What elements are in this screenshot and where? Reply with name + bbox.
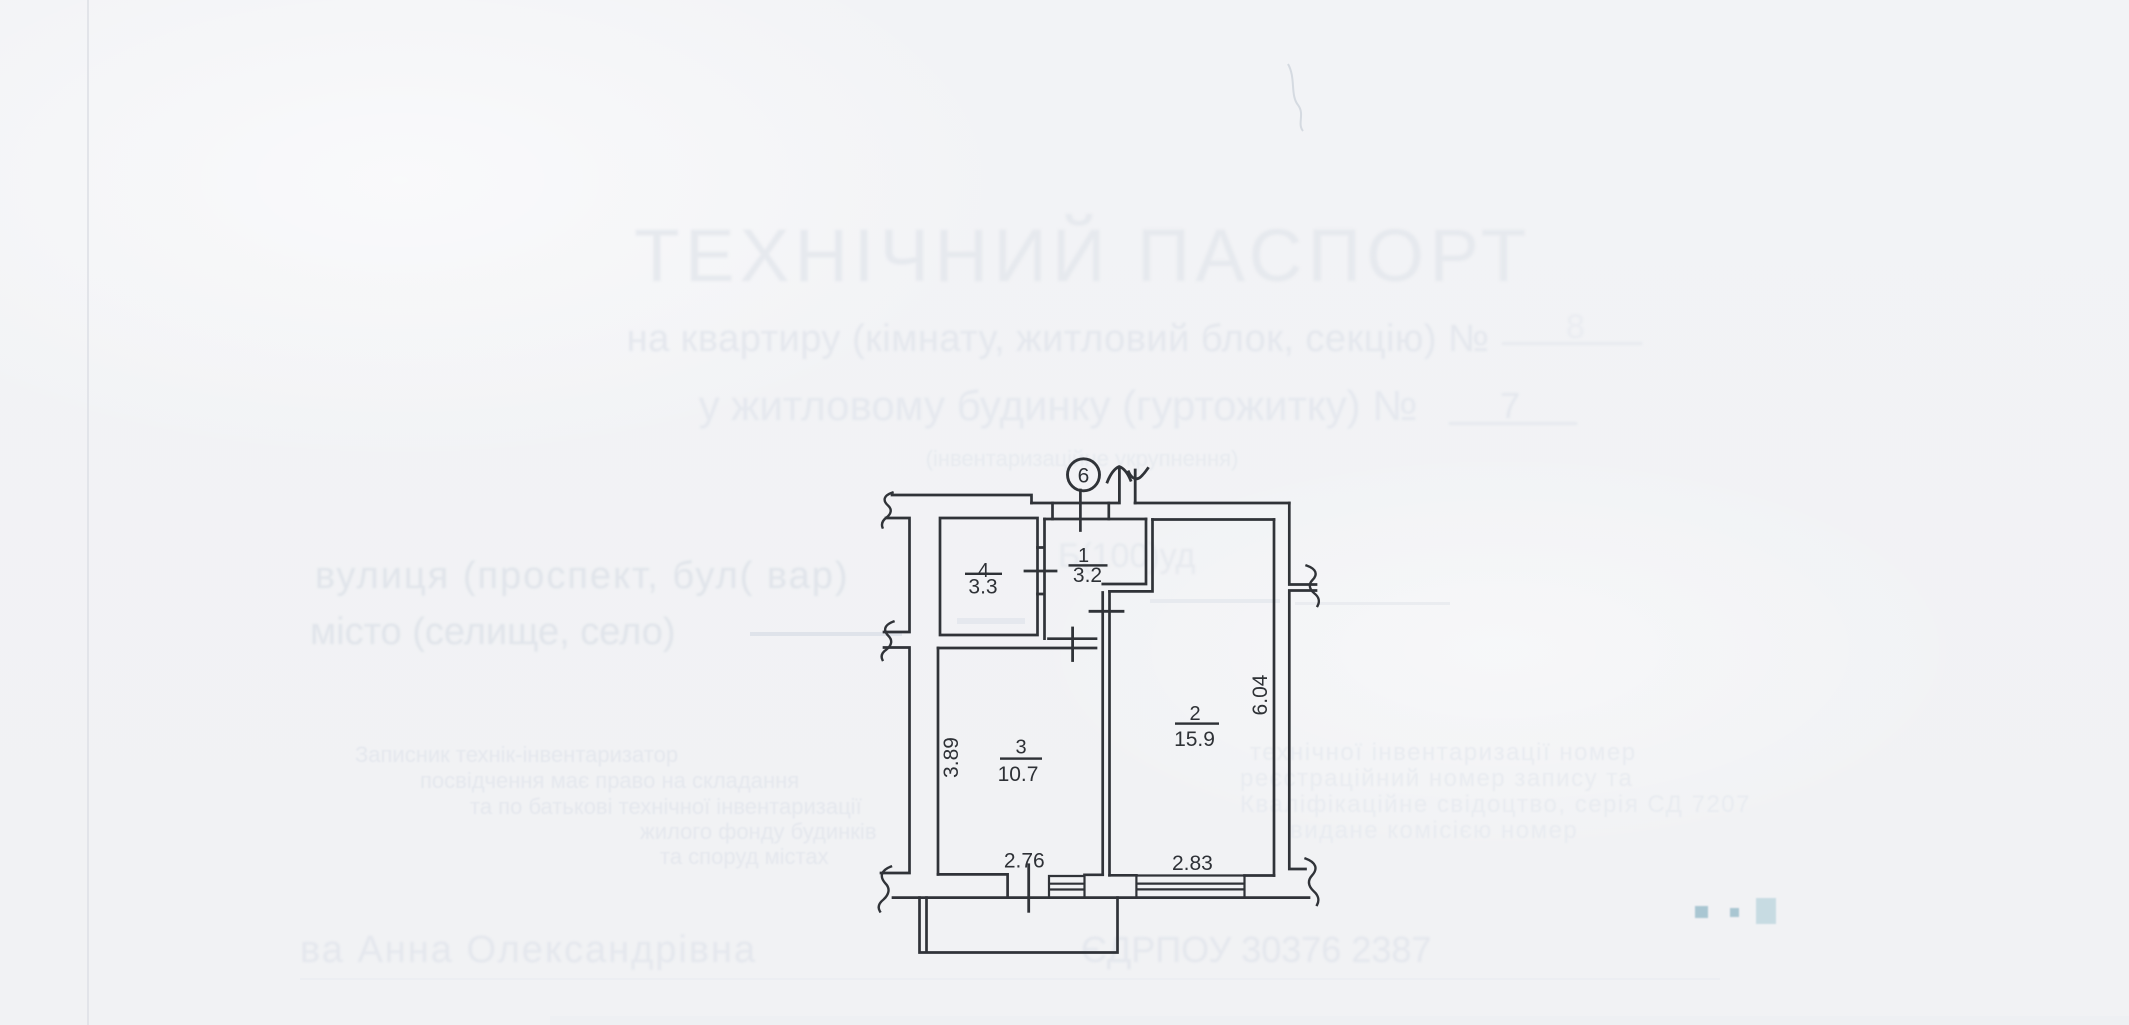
- svg-text:жилого фонду будинків: жилого фонду будинків: [640, 819, 877, 844]
- svg-text:технічної інвентаризації номер: технічної інвентаризації номер: [1250, 739, 1637, 766]
- svg-text:реєстраційний номер запису та: реєстраційний номер запису та: [1240, 765, 1633, 792]
- svg-text:2: 2: [1189, 703, 1200, 725]
- svg-text:6.04: 6.04: [1249, 674, 1272, 715]
- svg-text:видане комісією номер: видане комісією номер: [1290, 817, 1578, 844]
- svg-text:3.2: 3.2: [1073, 564, 1102, 587]
- svg-text:2.76: 2.76: [1004, 850, 1045, 873]
- svg-text:ЄДРПОУ 30376 2387: ЄДРПОУ 30376 2387: [1081, 929, 1431, 970]
- svg-text:7: 7: [1500, 385, 1520, 426]
- svg-text:3: 3: [1015, 737, 1026, 759]
- svg-text:8: 8: [1566, 308, 1585, 346]
- svg-text:посвідчення має право на склад: посвідчення має право на складання: [420, 768, 799, 793]
- svg-text:6: 6: [1078, 465, 1090, 488]
- svg-text:місто (селище, село): місто (селище, село): [310, 611, 676, 653]
- svg-text:10.7: 10.7: [998, 763, 1039, 786]
- svg-text:та споруд містах: та споруд містах: [660, 844, 829, 869]
- svg-text:2.83: 2.83: [1172, 852, 1213, 875]
- svg-text:у житловому будинку (гуртожитк: у житловому будинку (гуртожитку) №: [699, 382, 1418, 429]
- svg-text:ТЕХНІЧНИЙ ПАСПОРТ: ТЕХНІЧНИЙ ПАСПОРТ: [634, 214, 1531, 297]
- svg-text:3.3: 3.3: [968, 576, 997, 599]
- svg-text:та по батькові технічної інвен: та по батькові технічної інвентаризації: [470, 794, 862, 819]
- svg-text:Кваліфікаційне свідоцтво, сері: Кваліфікаційне свідоцтво, серія СД 7207: [1240, 791, 1751, 818]
- svg-text:на квартиру (кімнату, житловий: на квартиру (кімнату, житловий блок, сек…: [627, 318, 1490, 360]
- svg-text:Записник технік-інвентаризатор: Записник технік-інвентаризатор: [355, 742, 678, 767]
- svg-text:вулиця (проспект, бул( вар): вулиця (проспект, бул( вар): [315, 555, 850, 597]
- svg-text:15.9: 15.9: [1174, 728, 1215, 751]
- svg-text:ва Анна Олександрівна: ва Анна Олександрівна: [300, 929, 757, 971]
- svg-text:3.89: 3.89: [940, 737, 963, 778]
